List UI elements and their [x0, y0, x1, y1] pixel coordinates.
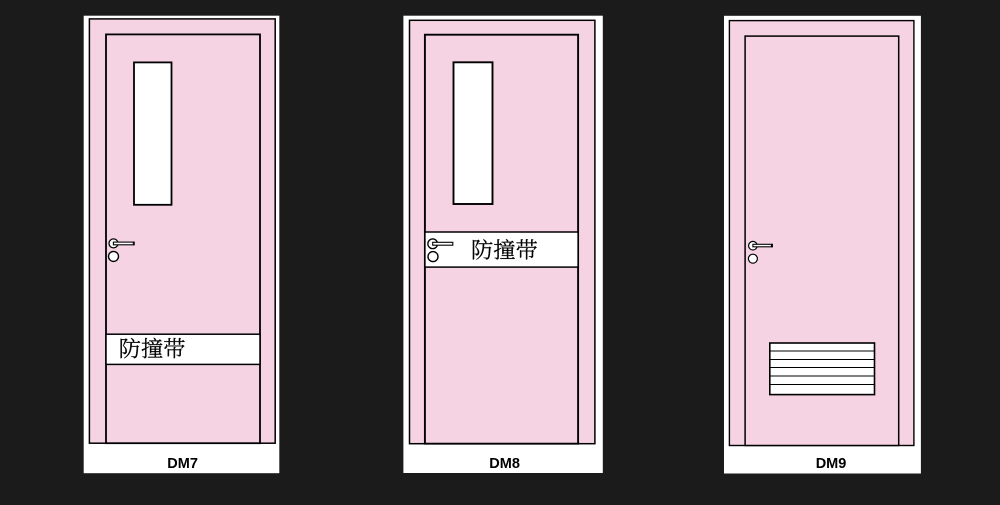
svg-text:DM8: DM8	[489, 456, 520, 472]
svg-text:DM7: DM7	[167, 456, 198, 472]
svg-text:DM9: DM9	[816, 456, 847, 472]
